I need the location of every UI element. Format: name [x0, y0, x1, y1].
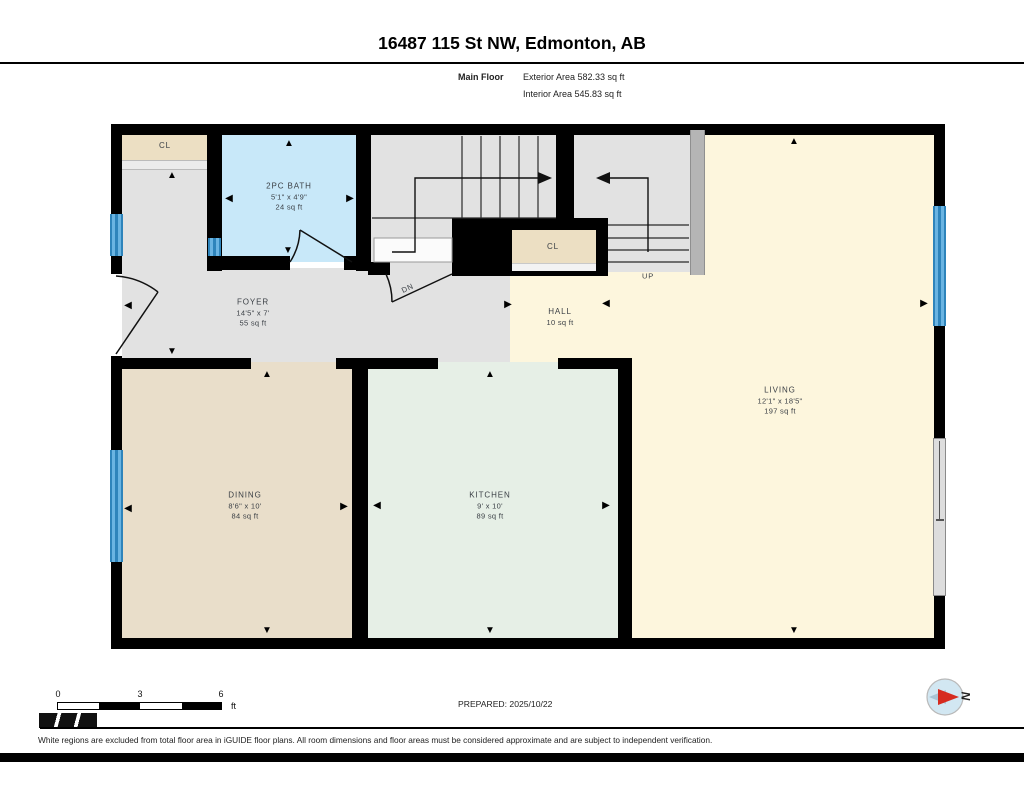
exterior-area: Exterior Area 582.33 sq ft [523, 72, 625, 82]
dim-arrow-living-top: ▲ [789, 137, 799, 147]
room-label-bath: 2PC BATH 5'1" x 4'9" 24 sq ft [266, 180, 312, 213]
closet-front [512, 263, 596, 271]
wall-foyer-dining [111, 358, 251, 369]
dim-arrow-living-bottom: ▼ [789, 626, 799, 636]
room-label-dining: DINING 8'6" x 10' 84 sq ft [228, 489, 261, 522]
wall-understair [368, 262, 390, 275]
floor-living [698, 130, 938, 280]
dim-arrow-dining-top: ▲ [262, 370, 272, 380]
dim-arrow-bath-bottom: ▼ [283, 246, 293, 256]
scale-unit: ft [231, 701, 236, 711]
dim-arrow-living-left: ◀ [602, 299, 610, 309]
sliding-door-panel-line [939, 441, 940, 519]
dim-arrow-dining-bottom: ▼ [262, 626, 272, 636]
room-label-hall: HALL 10 sq ft [547, 306, 574, 328]
dim-arrow-bath-right: ▶ [346, 194, 354, 204]
room-label-closet-top: CL [159, 140, 171, 152]
prepared-date: PREPARED: 2025/10/22 [458, 699, 552, 709]
scale-tick-3: 3 [137, 689, 142, 699]
wall-outer-bottom [111, 638, 945, 649]
wall-dining-kitchen [352, 358, 368, 643]
header-rule [0, 62, 1024, 64]
dim-arrow-kitchen-top: ▲ [485, 370, 495, 380]
stair-up-label: UP [642, 272, 654, 283]
scale-bar-segment [182, 703, 221, 709]
floor-label: Main Floor [458, 72, 504, 82]
scale-tick-0: 0 [55, 689, 60, 699]
dim-arrow-dining-left: ◀ [124, 504, 132, 514]
disclaimer-text: White regions are excluded from total fl… [38, 735, 998, 745]
window-icon [110, 214, 123, 256]
wall-outer-left [111, 124, 122, 649]
interior-area: Interior Area 545.83 sq ft [523, 89, 622, 99]
footer-rule [40, 727, 1024, 729]
dim-arrow-foyer-bottom: ▼ [167, 347, 177, 357]
floor-plan-page: 16487 115 St NW, Edmonton, AB Main Floor… [0, 0, 1024, 791]
scale-bar [57, 702, 222, 710]
dim-arrow-foyer-top: ▲ [167, 171, 177, 181]
wall-outer-top [111, 124, 945, 135]
stair-railing [690, 130, 705, 275]
wall-bath-bottom [344, 256, 370, 270]
floor-foyer [118, 268, 516, 370]
room-label-living: LIVING 12'1" x 18'5" 197 sq ft [757, 384, 802, 417]
room-label-foyer: FOYER 14'5" x 7' 55 sq ft [236, 296, 269, 329]
logo-fragment [39, 713, 97, 728]
footer-bar [0, 753, 1024, 762]
dim-arrow-kitchen-bottom: ▼ [485, 626, 495, 636]
dim-arrow-kitchen-left: ◀ [373, 501, 381, 511]
dim-arrow-dining-right: ▶ [340, 502, 348, 512]
page-title: 16487 115 St NW, Edmonton, AB [0, 33, 1024, 54]
scale-tick-6: 6 [218, 689, 223, 699]
dim-arrow-foyer-right: ▶ [504, 300, 512, 310]
sliding-door-icon [933, 438, 946, 596]
scale-bar-segment [99, 703, 140, 709]
dim-arrow-bath-top: ▲ [284, 139, 294, 149]
dim-arrow-living-right: ▶ [920, 299, 928, 309]
wall-kitchen-living [618, 358, 632, 643]
window-icon [208, 238, 221, 256]
dim-arrow-foyer-left: ◀ [124, 301, 132, 311]
dim-arrow-kitchen-right: ▶ [602, 501, 610, 511]
floor-hall [510, 272, 938, 362]
closet-front [118, 160, 214, 170]
window-icon [933, 206, 946, 326]
sliding-door-panel-line [936, 519, 944, 521]
wall-bath-right [356, 124, 371, 271]
room-label-kitchen: KITCHEN 9' x 10' 89 sq ft [469, 489, 510, 522]
compass-north-label: N [958, 692, 972, 701]
wall-bath-bottom [214, 256, 290, 270]
dim-arrow-bath-left: ◀ [225, 194, 233, 204]
room-label-closet-mid: CL [547, 241, 559, 253]
front-door-opening [111, 274, 122, 356]
window-icon [110, 450, 123, 562]
